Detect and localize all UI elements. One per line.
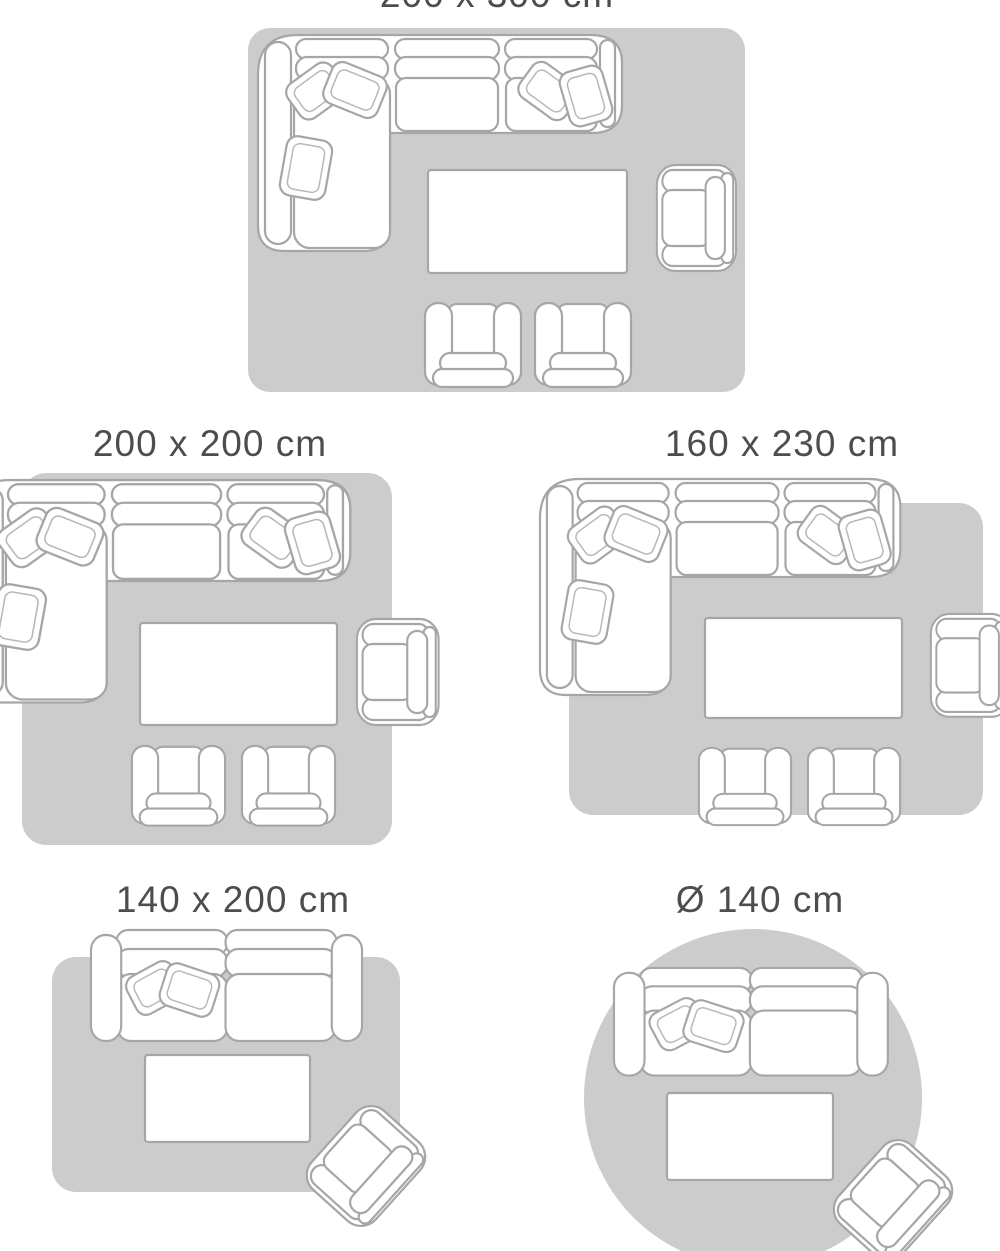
club-chair-left [132, 746, 225, 826]
coffee-table [140, 623, 337, 725]
size-label-d140: Ø 140 cm [676, 879, 844, 922]
panel-200x300 [248, 28, 745, 392]
panel-160x230 [540, 479, 1000, 825]
two-seater-sofa [614, 968, 888, 1076]
panel-140x200 [52, 930, 433, 1234]
coffee-table [705, 618, 902, 718]
size-label-200x300: 200 x 300 cm [380, 0, 614, 17]
club-chair-right [808, 748, 900, 825]
size-label-160x230: 160 x 230 cm [665, 423, 899, 466]
two-seater-sofa [91, 930, 362, 1041]
size-label-200x200: 200 x 200 cm [93, 423, 327, 466]
club-chair-right [242, 746, 335, 826]
panel-200x200 [0, 473, 439, 845]
rug-size-guide: 200 x 300 cm 200 x 200 cm 160 x 230 cm 1… [0, 0, 1000, 1251]
club-chair-left [425, 303, 521, 387]
coffee-table [667, 1093, 833, 1180]
club-chair-left [699, 748, 791, 825]
club-chair-right [535, 303, 631, 387]
coffee-table [145, 1055, 310, 1142]
size-label-140x200: 140 x 200 cm [116, 879, 350, 922]
armchair [931, 614, 1000, 717]
size-guide-illustration [0, 0, 1000, 1251]
armchair [357, 619, 439, 725]
armchair [657, 165, 736, 271]
coffee-table [428, 170, 627, 273]
panel-d140 [584, 929, 960, 1251]
